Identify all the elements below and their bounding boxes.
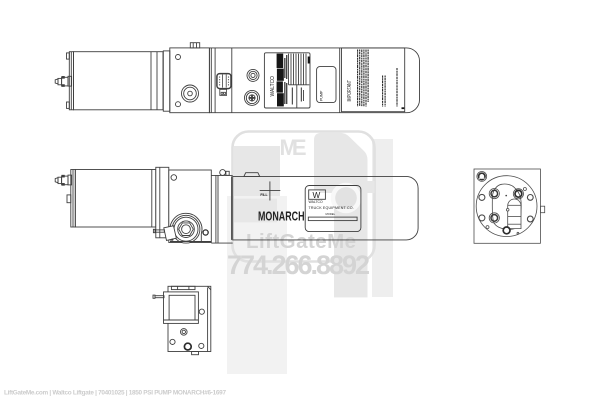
svg-text:MONARCH: MONARCH <box>258 209 305 223</box>
svg-text:WALTCO: WALTCO <box>270 76 276 97</box>
svg-text:774.266.8892: 774.266.8892 <box>227 250 370 280</box>
svg-text:LiftGateMe.com | Waltco Liftga: LiftGateMe.com | Waltco Liftgate | 70401… <box>4 390 226 397</box>
svg-text:WALTCO: WALTCO <box>309 200 323 204</box>
svg-text:MODEL: MODEL <box>326 212 336 216</box>
svg-text:FILL: FILL <box>260 193 267 197</box>
svg-text:ME: ME <box>280 135 307 160</box>
svg-text:TRUCK EQUIPMENT CO.: TRUCK EQUIPMENT CO. <box>309 206 354 210</box>
svg-text:IMPORTANT: IMPORTANT <box>347 79 353 101</box>
svg-text:PUMP: PUMP <box>320 90 324 101</box>
svg-text:W: W <box>313 191 321 200</box>
